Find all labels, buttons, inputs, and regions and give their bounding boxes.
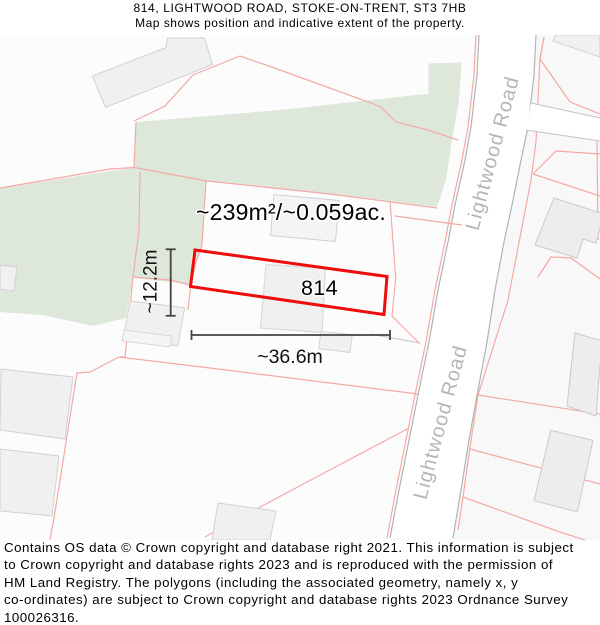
svg-text:~12.2m: ~12.2m <box>141 250 162 314</box>
svg-text:~36.6m: ~36.6m <box>257 346 323 368</box>
svg-text:814: 814 <box>301 276 338 300</box>
svg-text:~239m²/~0.059ac.: ~239m²/~0.059ac. <box>196 199 386 225</box>
